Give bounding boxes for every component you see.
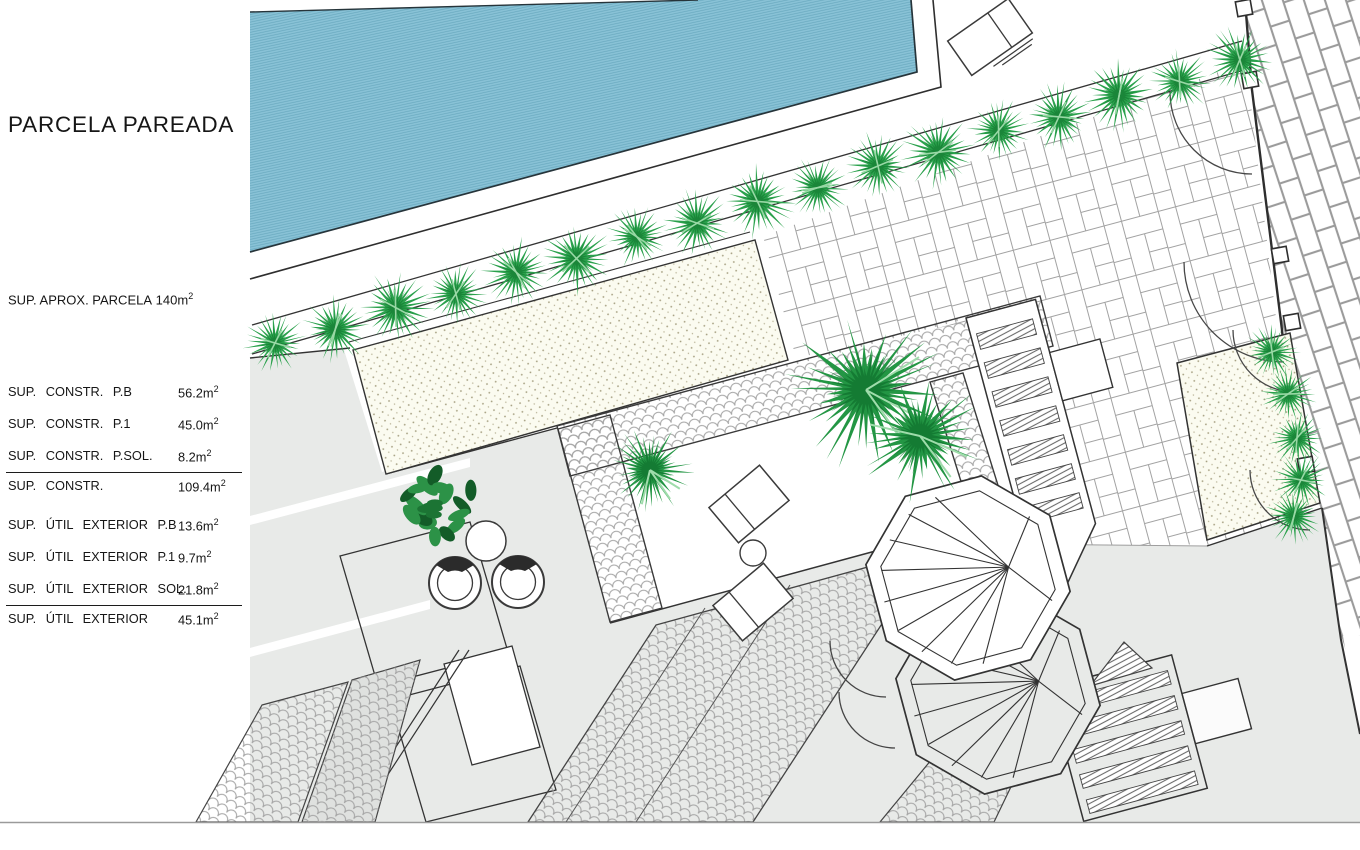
page-title: PARCELA PAREADA: [8, 112, 234, 138]
round-chair: [429, 557, 481, 609]
round-table: [466, 521, 506, 561]
table-row: SUP. ÚTIL EXTERIOR SOL. 21.8m2: [8, 581, 246, 601]
table-row: SUP. CONSTR. P.1 45.0m2: [8, 416, 246, 436]
site-plan-page: { "panel": { "title": "PARCELA PAREADA",…: [0, 0, 1360, 850]
table-total-row: SUP. CONSTR. 109.4m2: [8, 478, 246, 498]
legend-panel: PARCELA PAREADA SUP. APROX. PARCELA 140m…: [0, 0, 252, 830]
table-total-row: SUP. ÚTIL EXTERIOR 45.1m2: [8, 611, 246, 631]
table-separator: [6, 605, 242, 606]
table-row: SUP. ÚTIL EXTERIOR P.1 9.7m2: [8, 549, 246, 569]
table-row: SUP. CONSTR. P.SOL. 8.2m2: [8, 448, 246, 468]
sun-lounger: [948, 0, 1038, 83]
side-table: [740, 540, 766, 566]
table-row: SUP. CONSTR. P.B 56.2m2: [8, 384, 246, 404]
round-chair: [492, 556, 544, 608]
parcel-area: SUP. APROX. PARCELA 140m2: [8, 291, 193, 307]
constructed-areas-table: SUP. CONSTR. P.B 56.2m2 SUP. CONSTR. P.1…: [8, 384, 246, 504]
sun-lounger: [709, 465, 789, 543]
pool: [250, 0, 917, 252]
table-row: SUP. ÚTIL EXTERIOR P.B 13.6m2: [8, 517, 246, 537]
table-separator: [6, 472, 242, 473]
exterior-areas-table: SUP. ÚTIL EXTERIOR P.B 13.6m2 SUP. ÚTIL …: [8, 517, 246, 637]
